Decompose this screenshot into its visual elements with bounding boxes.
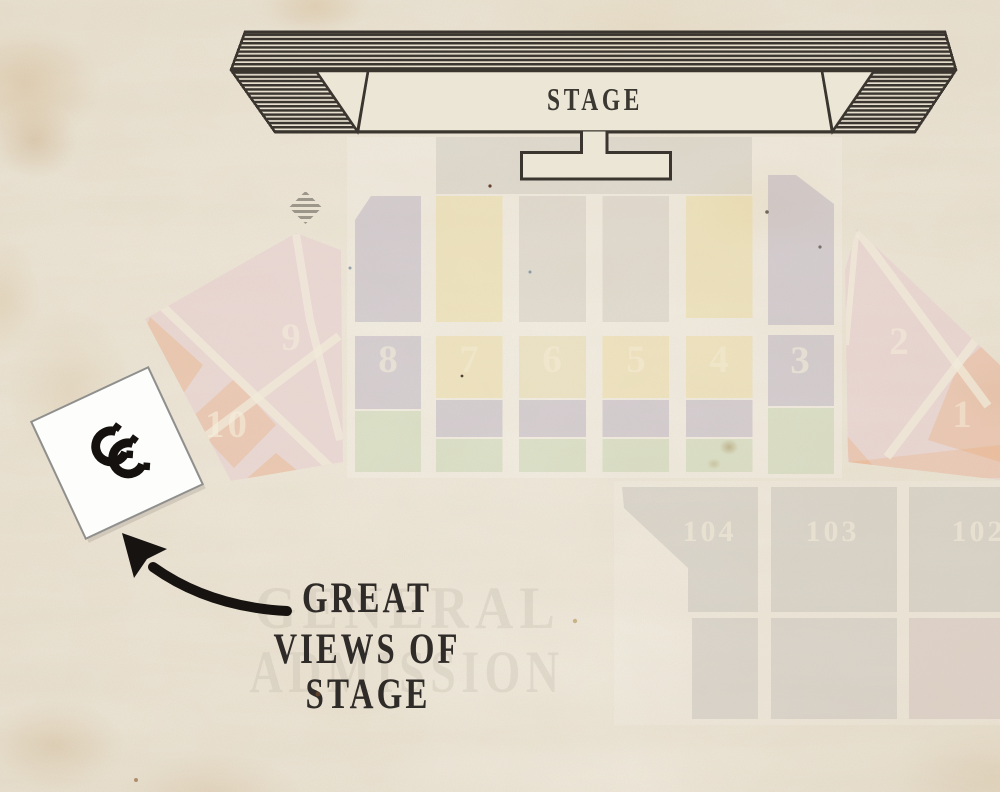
svg-text:104: 104 bbox=[683, 515, 734, 548]
svg-text:6: 6 bbox=[542, 338, 562, 381]
svg-text:5: 5 bbox=[626, 338, 646, 381]
svg-text:7: 7 bbox=[459, 338, 479, 381]
svg-text:4: 4 bbox=[709, 338, 729, 381]
svg-text:102: 102 bbox=[952, 515, 1000, 548]
svg-text:3: 3 bbox=[790, 339, 810, 382]
svg-text:9: 9 bbox=[281, 316, 301, 359]
svg-text:103: 103 bbox=[806, 515, 857, 548]
svg-text:2: 2 bbox=[889, 320, 909, 363]
svg-text:VIEWS OF: VIEWS OF bbox=[274, 626, 461, 673]
svg-text:1: 1 bbox=[952, 393, 972, 436]
svg-text:STAGE: STAGE bbox=[306, 671, 431, 718]
svg-text:8: 8 bbox=[378, 338, 398, 381]
svg-text:STAGE: STAGE bbox=[547, 81, 643, 117]
svg-text:GREAT: GREAT bbox=[302, 575, 432, 622]
